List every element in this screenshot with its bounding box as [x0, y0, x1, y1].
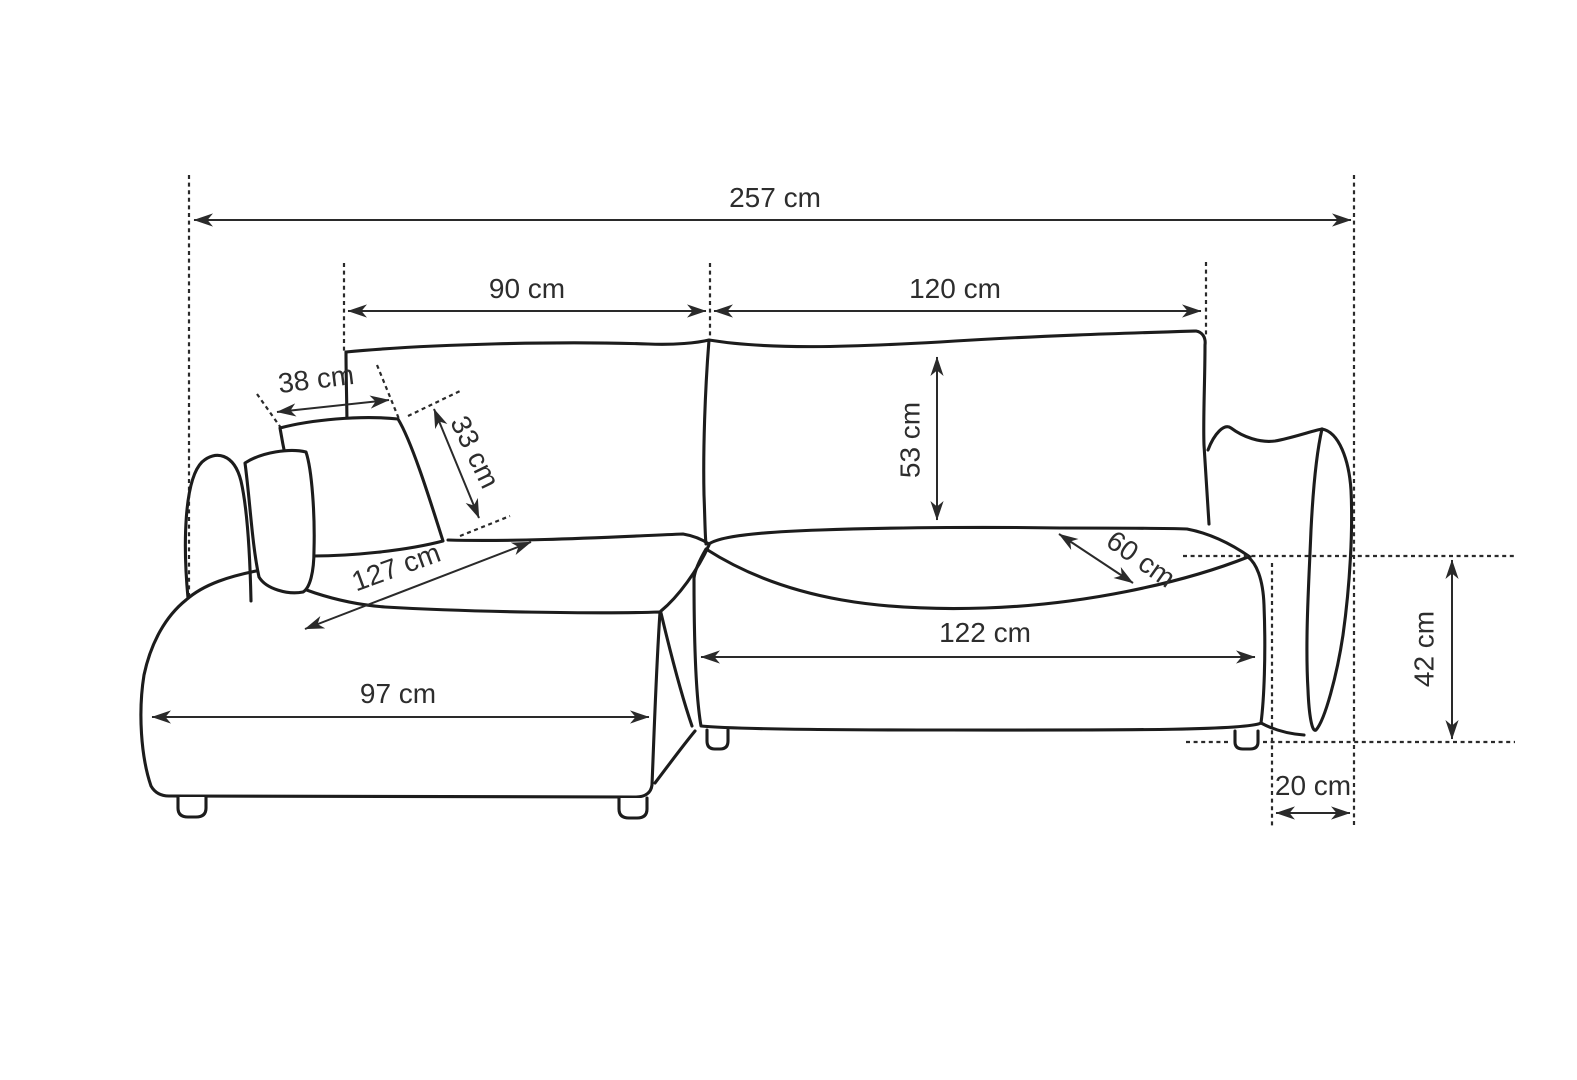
- label-seat-depth: 60 cm: [1101, 524, 1181, 593]
- ext-cushion-width-right: [377, 365, 399, 419]
- foot-main-left: [707, 730, 728, 749]
- label-cushion-depth: 33 cm: [444, 411, 505, 493]
- right-bolster: [1307, 429, 1352, 730]
- chaise-main-gap-lower: [655, 731, 695, 783]
- label-seat-front-width: 122 cm: [939, 617, 1031, 648]
- chaise-main-gap-upper: [661, 613, 692, 726]
- foot-main-right: [1235, 731, 1258, 749]
- label-armrest-depth: 20 cm: [1275, 770, 1351, 801]
- label-back-right-width: 120 cm: [909, 273, 1001, 304]
- foot-chaise-right: [619, 798, 647, 818]
- sofa-dimension-diagram: 257 cm 90 cm 120 cm 38 cm 33 cm 53 cm 12…: [0, 0, 1577, 1080]
- foot-chaise-left: [178, 797, 206, 817]
- right-bolster-top-edge: [1208, 427, 1322, 450]
- backrest-seam: [704, 340, 709, 544]
- label-armrest-height: 42 cm: [1409, 611, 1440, 687]
- corner-to-bolster-edge: [1261, 723, 1304, 735]
- dim-cushion-width-arrow: [277, 400, 389, 412]
- ext-cushion-depth-top: [408, 391, 460, 416]
- label-chaise-front-width: 97 cm: [360, 678, 436, 709]
- label-overall-width: 257 cm: [729, 182, 821, 213]
- label-back-left-width: 90 cm: [489, 273, 565, 304]
- ext-cushion-depth-bottom: [460, 516, 510, 536]
- label-cushion-width: 38 cm: [276, 359, 355, 399]
- diagram-canvas: 257 cm 90 cm 120 cm 38 cm 33 cm 53 cm 12…: [0, 0, 1577, 1080]
- label-backrest-height: 53 cm: [895, 402, 926, 478]
